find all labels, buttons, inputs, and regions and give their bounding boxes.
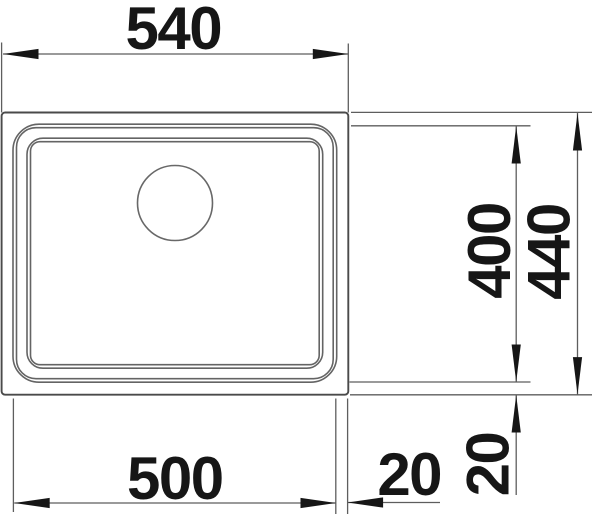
svg-text:540: 540 [125,0,221,62]
svg-text:400: 400 [456,203,523,299]
svg-text:20: 20 [455,433,522,497]
svg-text:20: 20 [377,441,441,508]
svg-text:440: 440 [516,204,583,300]
svg-text:500: 500 [127,445,223,512]
